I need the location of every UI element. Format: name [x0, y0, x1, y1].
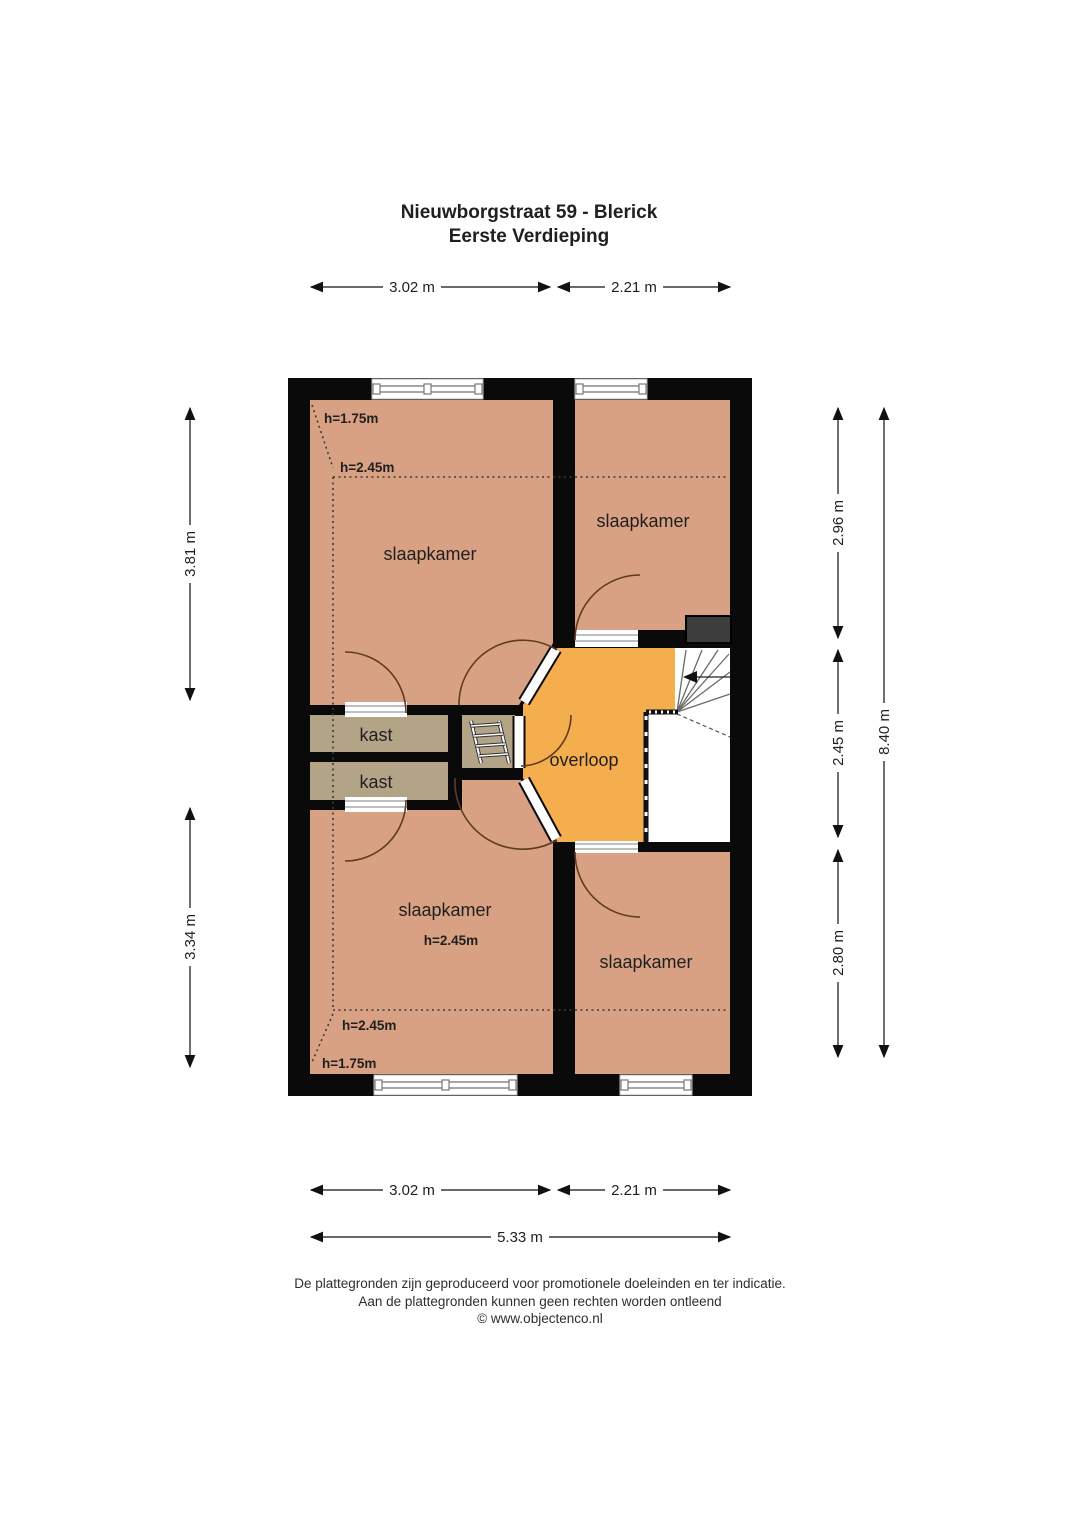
- window-top-left: [372, 379, 483, 399]
- title-address: Nieuwborgstraat 59 - Blerick: [401, 202, 658, 223]
- dim-right-height-middle: 2.45 m: [830, 720, 847, 766]
- label-height-bottom-room: h=2.45m: [424, 933, 478, 948]
- label-height-bottom-low: h=1.75m: [322, 1056, 376, 1071]
- label-landing: overloop: [549, 750, 618, 770]
- dim-left-height-top: 3.81 m: [182, 531, 199, 577]
- chimney-block: [686, 616, 731, 643]
- label-height-top-low: h=1.75m: [324, 411, 378, 426]
- dim-right-height-total: 8.40 m: [876, 709, 893, 755]
- label-height-bottom-main: h=2.45m: [342, 1018, 396, 1033]
- floorplan-drawing: Nieuwborgstraat 59 - Blerick Eerste Verd…: [0, 0, 1080, 1527]
- label-closet-top: kast: [359, 725, 392, 745]
- dim-bottom-width-left: 3.02 m: [389, 1182, 435, 1199]
- label-bedroom-top-right: slaapkamer: [596, 511, 689, 531]
- dim-bottom-width-right: 2.21 m: [611, 1182, 657, 1199]
- window-bottom-left: [374, 1075, 517, 1095]
- footer-line-1: De plattegronden zijn geproduceerd voor …: [294, 1276, 786, 1291]
- label-height-top-main: h=2.45m: [340, 460, 394, 475]
- footer-disclaimer: De plattegronden zijn geproduceerd voor …: [294, 1276, 786, 1326]
- floorplan-page: Nieuwborgstraat 59 - Blerick Eerste Verd…: [0, 0, 1080, 1527]
- dim-bottom-width-total: 5.33 m: [497, 1229, 543, 1246]
- dim-right-height-top: 2.96 m: [830, 500, 847, 546]
- dim-left-height-bottom: 3.34 m: [182, 914, 199, 960]
- title-floor: Eerste Verdieping: [449, 226, 610, 247]
- label-closet-bottom: kast: [359, 772, 392, 792]
- window-top-right: [575, 379, 647, 399]
- label-bedroom-bottom-left: slaapkamer: [398, 900, 491, 920]
- dim-top-width-left: 3.02 m: [389, 279, 435, 296]
- plan-title: Nieuwborgstraat 59 - Blerick Eerste Verd…: [401, 202, 658, 247]
- label-bedroom-top-left: slaapkamer: [383, 544, 476, 564]
- label-bedroom-bottom-right: slaapkamer: [599, 952, 692, 972]
- footer-copyright: © www.objectenco.nl: [477, 1311, 603, 1326]
- dim-top-width-right: 2.21 m: [611, 279, 657, 296]
- window-bottom-right: [620, 1075, 692, 1095]
- dim-right-height-bottom: 2.80 m: [830, 930, 847, 976]
- footer-line-2: Aan de plattegronden kunnen geen rechten…: [358, 1294, 721, 1309]
